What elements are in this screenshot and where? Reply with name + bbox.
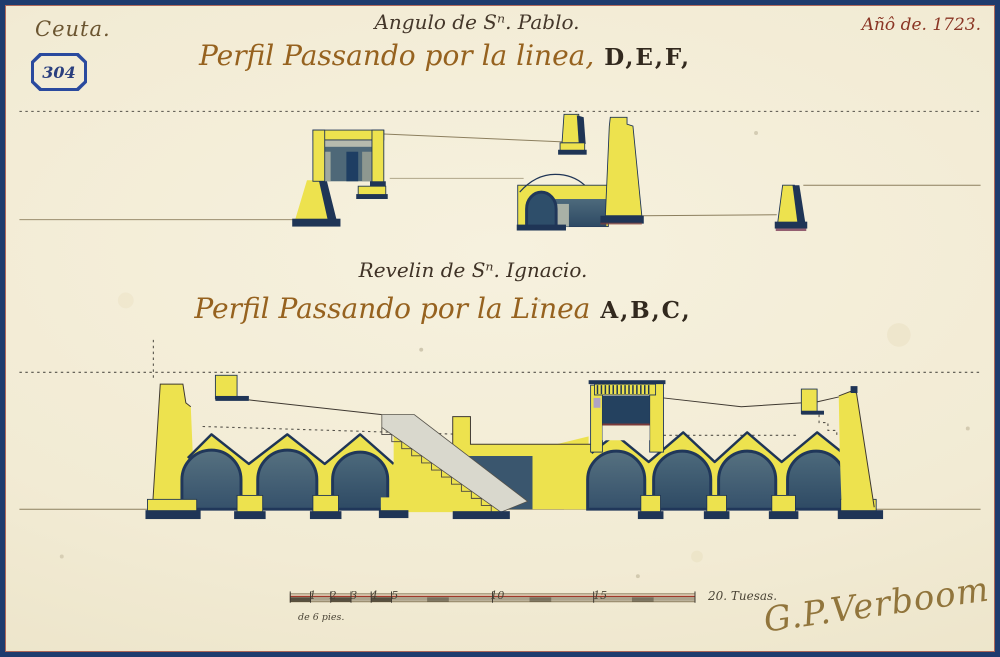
vault-arch-5 bbox=[654, 451, 711, 509]
vault-arch-7 bbox=[788, 451, 845, 509]
lower-profile-subtitle: Perfil Passando por la Linea A,B,C, bbox=[194, 292, 691, 325]
gate-doorway bbox=[346, 152, 358, 182]
vault-arch-2 bbox=[258, 450, 317, 509]
upper-profile-title: Angulo de Sⁿ. Pablo. bbox=[374, 10, 579, 34]
scale-mark-3: 3 bbox=[350, 589, 357, 602]
lower-subtitle-script: Perfil Passando por la Linea bbox=[194, 292, 590, 325]
scale-mark-5: 5 bbox=[391, 589, 398, 602]
tower-room bbox=[602, 396, 649, 426]
counterguard-wall bbox=[775, 185, 807, 231]
vault-arch-6 bbox=[719, 451, 776, 509]
scale-mark-1: 1 bbox=[309, 589, 316, 602]
casemate-tower bbox=[589, 380, 666, 452]
scale-mark-4: 4 bbox=[371, 589, 378, 602]
lower-profile-title: Revelin de Sⁿ. Ignacio. bbox=[359, 258, 588, 282]
upper-subtitle-letters: D,E,F, bbox=[604, 44, 691, 71]
archive-stamp-face: 304 bbox=[34, 56, 84, 88]
right-parapet bbox=[801, 389, 817, 414]
vault-arch-3 bbox=[333, 452, 388, 509]
scale-mark-15: 15 bbox=[593, 589, 607, 602]
rampart-wall bbox=[605, 117, 641, 215]
rampart-casemate-structure bbox=[517, 114, 644, 230]
fortification-profiles-drawing bbox=[5, 5, 995, 652]
upper-profile-subtitle: Perfil Passando por la linea, D,E,F, bbox=[199, 39, 691, 72]
year-label: Añô de. 1723. bbox=[862, 15, 981, 35]
archive-stamp: 304 bbox=[31, 53, 87, 91]
scale-mark-2: 2 bbox=[330, 589, 337, 602]
left-parapet bbox=[215, 375, 237, 399]
gate-casemate-structure bbox=[292, 130, 388, 227]
collection-label: Ceuta. bbox=[35, 17, 111, 41]
vault-arch-4 bbox=[588, 451, 645, 509]
stamp-number: 304 bbox=[42, 63, 75, 82]
lower-profile-drawing bbox=[19, 340, 980, 519]
lower-subtitle-letters: A,B,C, bbox=[600, 297, 691, 324]
casemate-arch bbox=[527, 192, 557, 226]
manuscript-page: Ceuta. 304 Añô de. 1723. Angulo de Sⁿ. P… bbox=[0, 0, 1000, 657]
scale-mark-10: 10 bbox=[490, 589, 504, 602]
upper-profile-drawing bbox=[19, 111, 980, 231]
upper-subtitle-script: Perfil Passando por la linea, bbox=[199, 39, 594, 72]
scale-unit-note: de 6 pies. bbox=[298, 612, 344, 623]
